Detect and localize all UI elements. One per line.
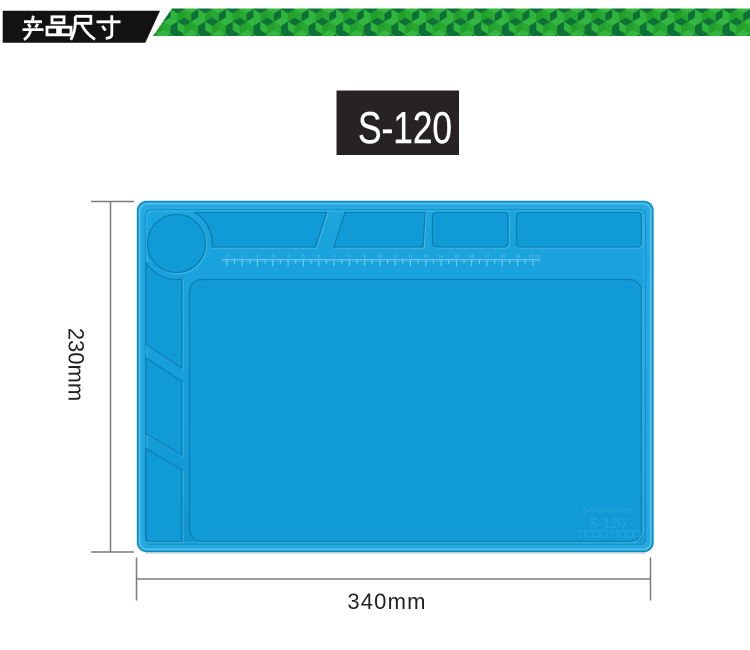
svg-text:18: 18 — [500, 254, 506, 259]
svg-text:19: 19 — [515, 254, 521, 259]
svg-text:14: 14 — [439, 254, 445, 259]
svg-text:7: 7 — [333, 254, 336, 259]
svg-text:3: 3 — [272, 254, 275, 259]
svg-text:340mmX230mm: 340mmX230mm — [583, 506, 631, 515]
svg-text:340mm: 340mm — [347, 589, 426, 614]
svg-text:12: 12 — [408, 254, 414, 259]
svg-text:6: 6 — [317, 254, 320, 259]
svg-text:230mm: 230mm — [64, 328, 89, 401]
svg-text:2: 2 — [256, 254, 259, 259]
svg-text:1: 1 — [241, 254, 244, 259]
svg-text:15: 15 — [454, 254, 460, 259]
svg-text:10: 10 — [377, 254, 383, 259]
svg-text:0: 0 — [226, 254, 229, 259]
svg-text:5: 5 — [302, 254, 305, 259]
svg-text:13: 13 — [423, 254, 429, 259]
svg-text:17: 17 — [484, 254, 490, 259]
svg-text:4: 4 — [287, 254, 290, 259]
svg-text:S-120: S-120 — [589, 516, 626, 531]
svg-text:S-120: S-120 — [358, 104, 452, 153]
svg-text:20 cm: 20 cm — [529, 254, 542, 259]
svg-text:8: 8 — [348, 254, 351, 259]
svg-text:11: 11 — [393, 254, 398, 259]
svg-text:16: 16 — [469, 254, 475, 259]
svg-text:9: 9 — [363, 254, 366, 259]
